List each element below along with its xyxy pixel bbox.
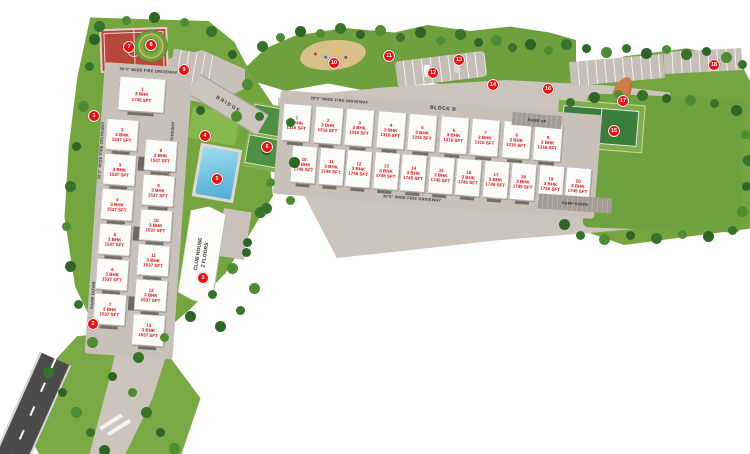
amenity-marker[interactable]: 5 [211, 173, 223, 185]
amenity-marker[interactable]: 10 [328, 57, 340, 69]
marker-number: 13 [456, 57, 462, 63]
marker-number: 5 [215, 176, 218, 182]
amenity-marker[interactable]: 3 [197, 272, 209, 284]
amenity-marker[interactable]: 8 [145, 39, 157, 51]
marker-number: 2 [91, 321, 94, 327]
marker-number: 18 [711, 62, 717, 68]
marker-number: 7 [127, 44, 130, 50]
amenity-marker[interactable]: 9 [178, 64, 190, 76]
marker-number: 1 [92, 113, 95, 119]
marker-number: 9 [182, 67, 185, 73]
amenity-marker[interactable]: 7 [123, 41, 135, 53]
amenity-marker[interactable]: 14 [487, 79, 499, 91]
amenity-marker[interactable]: 12 [427, 67, 439, 79]
marker-number: 15 [611, 128, 617, 134]
marker-number: 3 [201, 275, 204, 281]
marker-number: 11 [386, 53, 392, 59]
amenity-marker[interactable]: 18 [708, 59, 720, 71]
amenity-marker[interactable]: 6 [261, 141, 273, 153]
amenity-marker[interactable]: 4 [199, 130, 211, 142]
amenity-marker[interactable]: 17 [617, 95, 629, 107]
marker-number: 16 [545, 86, 551, 92]
marker-number: 12 [430, 70, 436, 76]
amenity-marker[interactable]: 15 [608, 125, 620, 137]
marker-number: 4 [203, 133, 206, 139]
amenity-marker[interactable]: 11 [383, 50, 395, 62]
amenity-marker[interactable]: 13 [453, 54, 465, 66]
amenity-markers-layer: 1 2 3 4 5 6 7 8 9 10 11 12 13 14 15 16 1… [0, 0, 750, 454]
amenity-marker[interactable]: 2 [87, 318, 99, 330]
marker-number: 14 [490, 82, 496, 88]
marker-number: 8 [149, 42, 152, 48]
site-master-plan: BRIDGE 30'0" WIDE FIRE DRIVEWAY 30'0" WI… [0, 0, 750, 454]
marker-number: 6 [265, 144, 268, 150]
marker-number: 17 [620, 98, 626, 104]
amenity-marker[interactable]: 1 [88, 110, 100, 122]
amenity-marker[interactable]: 16 [542, 83, 554, 95]
marker-number: 10 [331, 60, 337, 66]
